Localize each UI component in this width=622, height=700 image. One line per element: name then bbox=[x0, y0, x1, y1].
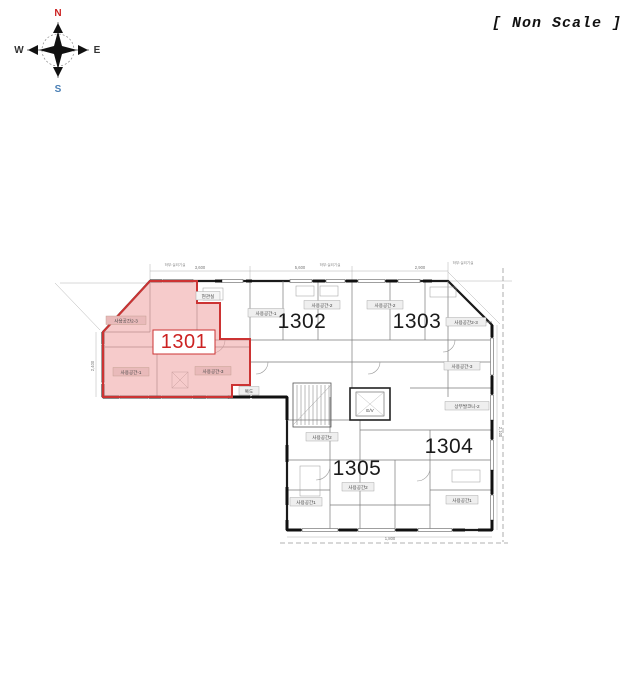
svg-text:사용공간-3: 사용공간-3 bbox=[203, 368, 224, 375]
compass-star-icon bbox=[39, 31, 77, 69]
svg-text:사용공간2-3: 사용공간2-3 bbox=[114, 318, 138, 325]
unit-label-1304: 1304 bbox=[425, 435, 474, 458]
svg-text:사용공간2-3: 사용공간2-3 bbox=[454, 319, 478, 326]
svg-text:사용공간2: 사용공간2 bbox=[348, 484, 368, 491]
svg-text:사용공간1: 사용공간1 bbox=[296, 499, 316, 506]
room-label: 사용공간2-3 bbox=[106, 316, 146, 325]
svg-text:2,400: 2,400 bbox=[90, 360, 95, 371]
compass-rose: N W E S bbox=[14, 8, 100, 95]
elevator-shaft: E/V bbox=[350, 388, 390, 420]
unit-label-1302: 1302 bbox=[278, 310, 327, 333]
svg-text:2,900: 2,900 bbox=[415, 265, 426, 270]
south-arrow-icon bbox=[53, 67, 63, 77]
svg-text:사용공간-1: 사용공간-1 bbox=[121, 369, 142, 376]
svg-text:하부:실외기실: 하부:실외기실 bbox=[165, 262, 186, 267]
elevator-label: E/V bbox=[366, 408, 374, 413]
compass-label-s: S bbox=[55, 84, 62, 95]
room-label: 사용공간1 bbox=[290, 498, 322, 507]
svg-text:1,800: 1,800 bbox=[385, 536, 396, 541]
svg-text:사용공간-1: 사용공간-1 bbox=[256, 310, 277, 317]
svg-text:3,600: 3,600 bbox=[195, 265, 206, 270]
scale-note: [ Non Scale ] bbox=[492, 15, 622, 32]
room-label: 현관실 bbox=[196, 292, 220, 301]
north-arrow-icon bbox=[53, 23, 63, 33]
unit-label-1305: 1305 bbox=[333, 457, 382, 480]
edge-notes: 하부:실외기실 하부:실외기실 하부:실외기실 bbox=[165, 260, 474, 267]
room-label: 사용공간2-3 bbox=[446, 318, 486, 327]
svg-text:사용공간2: 사용공간2 bbox=[312, 434, 332, 441]
svg-text:사용공간-2: 사용공간-2 bbox=[375, 302, 396, 309]
svg-text:상부발코니-2: 상부발코니-2 bbox=[454, 403, 480, 410]
room-label: 사용공간1 bbox=[446, 496, 478, 505]
room-label: 사용공간-3 bbox=[195, 367, 231, 376]
west-arrow-icon bbox=[28, 45, 38, 55]
svg-text:사용공간-3: 사용공간-3 bbox=[452, 363, 473, 370]
svg-text:하부:실외기실: 하부:실외기실 bbox=[453, 260, 474, 265]
unit-label-1301: 1301 bbox=[161, 331, 208, 353]
svg-text:5,600: 5,600 bbox=[295, 265, 306, 270]
room-label: 사용공간2 bbox=[342, 483, 374, 492]
compass-label-w: W bbox=[14, 45, 24, 56]
east-arrow-icon bbox=[78, 45, 88, 55]
floor-plan-page: N W E S [ Non Scale ] bbox=[0, 0, 622, 700]
room-label: 복도 bbox=[239, 387, 259, 396]
svg-text:2,100: 2,100 bbox=[498, 427, 503, 438]
room-label: 사용공간-3 bbox=[444, 362, 480, 371]
room-label: 상부발코니-2 bbox=[445, 402, 489, 411]
svg-text:사용공간-2: 사용공간-2 bbox=[312, 302, 333, 309]
svg-text:현관실: 현관실 bbox=[202, 293, 215, 299]
svg-text:하부:실외기실: 하부:실외기실 bbox=[320, 262, 341, 267]
room-label: 사용공간-2 bbox=[304, 301, 340, 310]
unit-label-1303: 1303 bbox=[393, 310, 442, 333]
svg-text:사용공간1: 사용공간1 bbox=[452, 497, 472, 504]
compass-label-n: N bbox=[54, 8, 61, 19]
room-label: 사용공간2 bbox=[306, 433, 338, 442]
room-label: 사용공간-1 bbox=[113, 368, 149, 377]
room-label: 사용공간-2 bbox=[367, 301, 403, 310]
compass-label-e: E bbox=[94, 45, 101, 56]
floor-plan-canvas: N W E S [ Non Scale ] bbox=[0, 0, 622, 700]
